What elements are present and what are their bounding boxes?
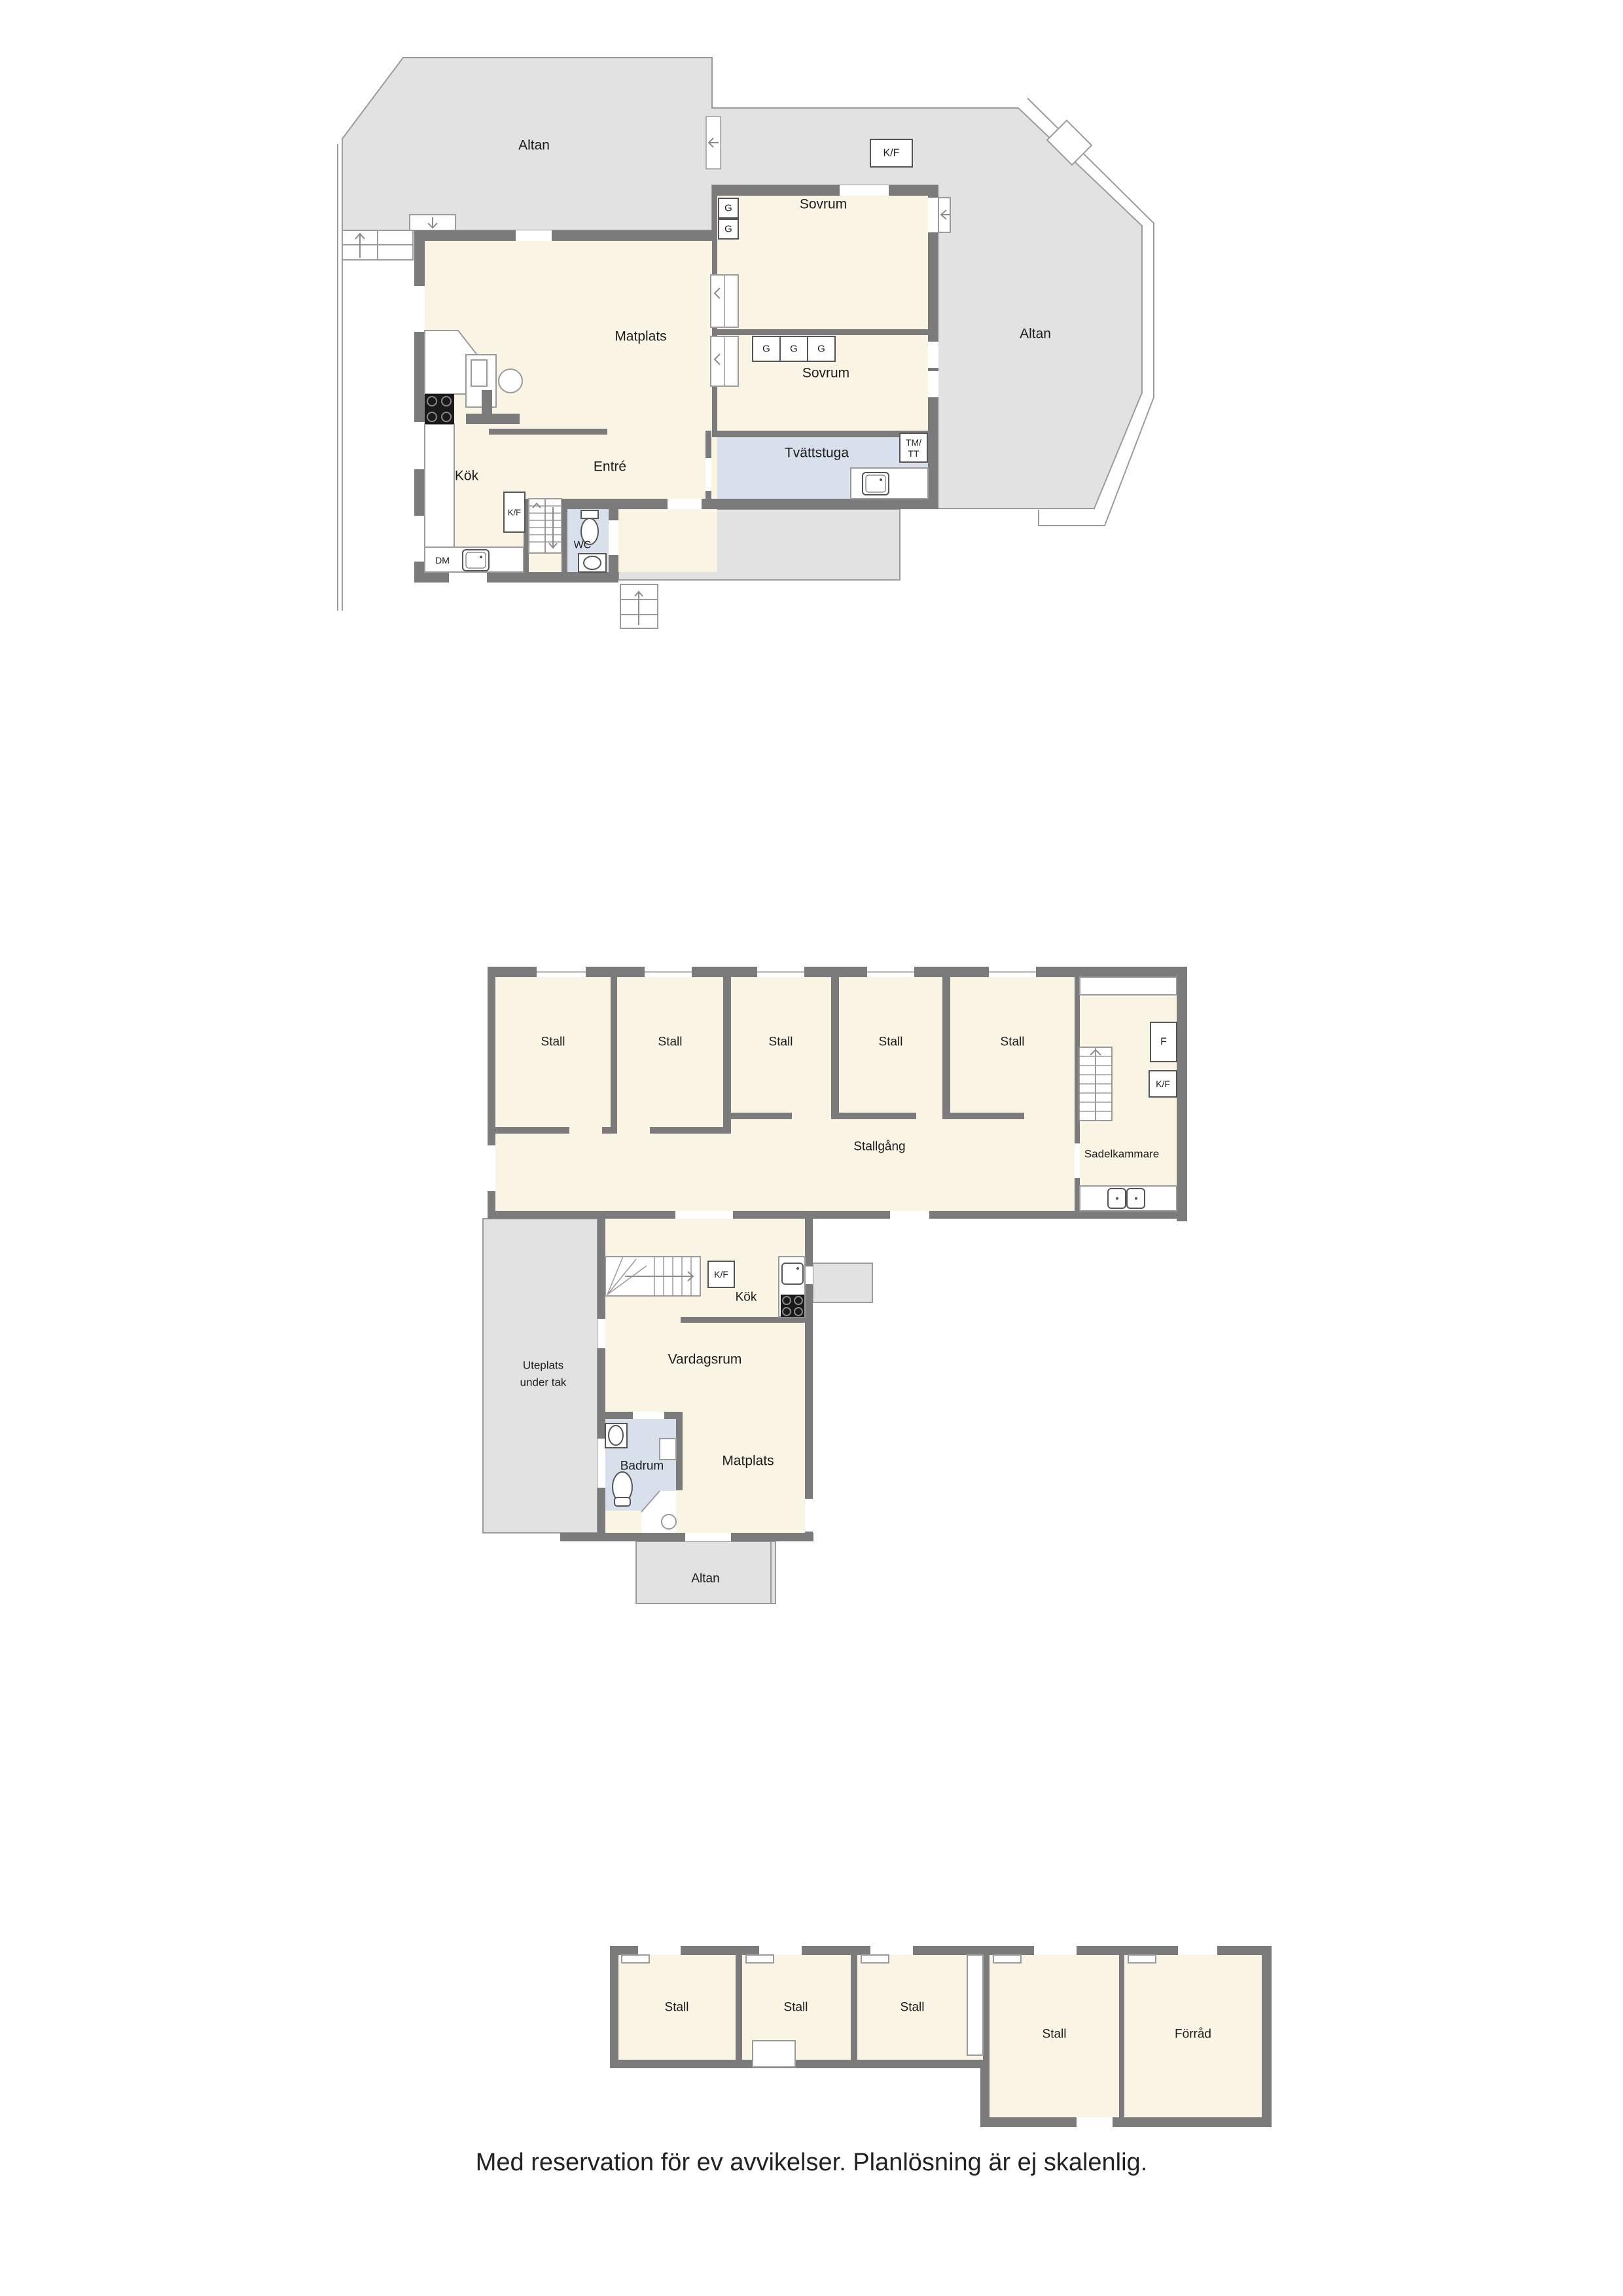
room-label-kok: Kök <box>455 469 479 484</box>
disclaimer-text: Med reservation för ev avvikelser. Planl… <box>0 2149 1623 2177</box>
room-label-wc: WC <box>574 540 592 551</box>
room-label-stall-3: Stall <box>901 2001 925 2015</box>
shower-drain-icon <box>662 1515 676 1529</box>
bedroom-area-floor <box>717 196 928 431</box>
fridge-freezer-label: K/F <box>1156 1079 1170 1089</box>
apartment-sink-icon <box>782 1263 803 1284</box>
apartment-stairs <box>605 1257 700 1296</box>
room-label-forrad: Förråd <box>1175 2028 1211 2041</box>
badrum-sink-icon <box>609 1426 623 1445</box>
room-label-uteplats-1: Uteplats <box>523 1359 563 1372</box>
washer-dryer-label-1: TM/ <box>906 437 921 448</box>
left-steps <box>342 230 413 260</box>
stable-stairs <box>1079 1047 1112 1121</box>
fridge-freezer-label: K/F <box>883 148 900 159</box>
balcony-area <box>813 1263 872 1302</box>
dishwasher-label: DM <box>435 555 450 565</box>
room-label-uteplats-2: under tak <box>520 1376 567 1389</box>
room-label-stall-5: Stall <box>1001 1035 1025 1049</box>
room-label-vardagsrum: Vardagsrum <box>668 1352 742 1367</box>
room-label-stallgang: Stallgång <box>853 1140 905 1154</box>
apartment-stove-icon <box>781 1295 804 1317</box>
wc-sink-icon <box>584 556 601 569</box>
washer-dryer-label-2: TT <box>908 448 919 459</box>
room-label-kok: Kök <box>736 1291 757 1304</box>
room-label-stall-3: Stall <box>769 1035 793 1049</box>
room-label-sadelkammare: Sadelkammare <box>1084 1148 1159 1160</box>
stove-icon <box>425 394 454 424</box>
outbuilding-floors <box>618 1955 1262 2117</box>
room-label-stall-1: Stall <box>541 1035 565 1049</box>
room-label-stall-2: Stall <box>784 2001 808 2015</box>
toilet-tank-icon <box>581 511 598 518</box>
room-label-sovrum-1: Sovrum <box>800 197 847 212</box>
room-label-stall-4: Stall <box>1043 2028 1067 2041</box>
stable-floor-plan: F K/F K/F <box>471 949 1198 1610</box>
wardrobe-label: G <box>724 203 732 214</box>
laundry-counter <box>851 468 928 499</box>
wardrobe-label: G <box>790 344 798 355</box>
kitchen-fridge-label: K/F <box>508 508 521 518</box>
wardrobe-label: G <box>724 224 732 235</box>
porch-steps <box>620 584 658 628</box>
sliding-door-pocket <box>967 1955 983 2055</box>
sadelkammare-sink-counter <box>1080 1186 1177 1211</box>
badrum-shelf <box>660 1439 676 1460</box>
wardrobe-label: G <box>817 344 825 355</box>
outbuilding-floor-plan: Stall Stall Stall Stall Förråd <box>602 1937 1283 2134</box>
freezer-label: F <box>1160 1037 1167 1048</box>
room-label-stall-2: Stall <box>658 1035 683 1049</box>
room-label-matplats: Matplats <box>615 329 666 344</box>
room-label-entre: Entré <box>594 459 626 475</box>
house-floor-plan: G G G G G K/F TM/ TT K/F <box>327 39 1145 635</box>
apartment-kitchen-counter <box>779 1257 805 1317</box>
room-label-matplats: Matplats <box>722 1454 774 1469</box>
apartment-fridge-label: K/F <box>714 1269 728 1280</box>
wardrobe-label: G <box>762 344 770 355</box>
terrace-door-step <box>410 215 455 230</box>
room-label-altan: Altan <box>691 1572 719 1586</box>
room-label-altan-left: Altan <box>518 138 550 153</box>
room-label-stall-1: Stall <box>665 2001 689 2015</box>
stall-hatch <box>753 2041 795 2067</box>
room-label-stall-4: Stall <box>879 1035 903 1049</box>
floor-plan-page: G G G G G K/F TM/ TT K/F <box>0 0 1623 2296</box>
room-label-altan-right: Altan <box>1020 327 1051 342</box>
room-label-tvattstuga: Tvättstuga <box>785 446 849 461</box>
kitchen-sink-icon <box>463 550 489 571</box>
room-label-badrum: Badrum <box>620 1460 664 1473</box>
house-stairs <box>529 499 562 553</box>
kitchen-counter-left <box>425 424 454 547</box>
room-label-sovrum-2: Sovrum <box>802 366 849 381</box>
